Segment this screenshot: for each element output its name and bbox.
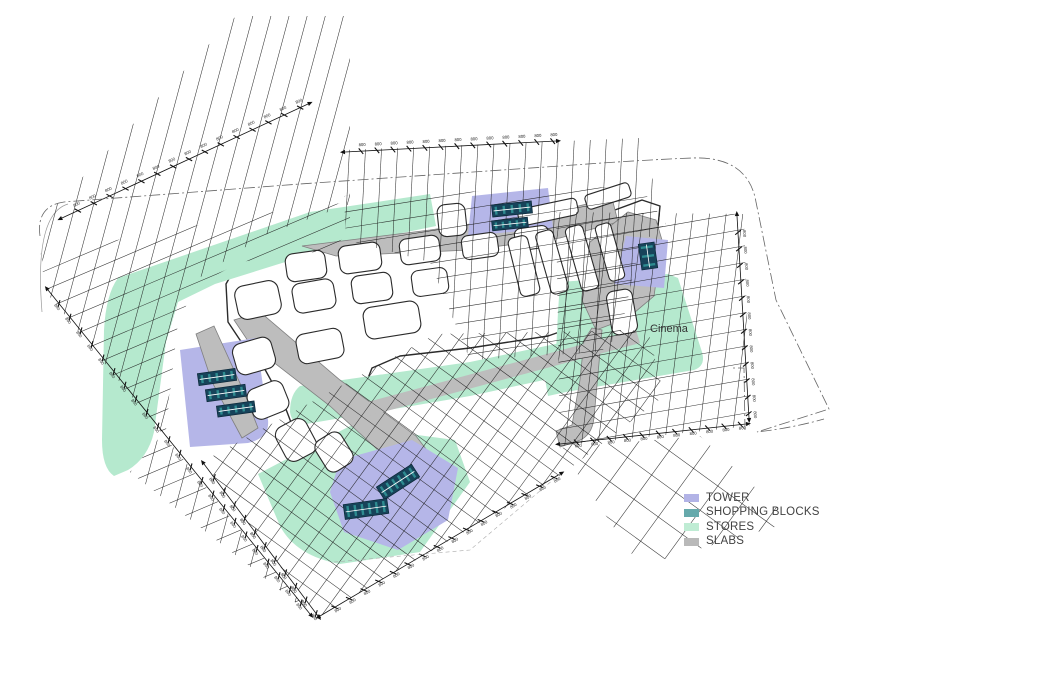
dimension-label: 800 xyxy=(239,517,248,526)
site-plan-canvas: 8008008008008008008008008008008008008008… xyxy=(0,0,1058,699)
courtyard-void xyxy=(410,267,449,298)
legend-label-tower: TOWER xyxy=(706,493,750,505)
dimension-label: 800 xyxy=(436,545,445,553)
dimension-label: 800 xyxy=(390,140,398,145)
dimension-label: 800 xyxy=(747,312,752,320)
dimension-label: 800 xyxy=(753,411,758,419)
dimension-label: 800 xyxy=(624,437,632,443)
dimension-label: 800 xyxy=(722,427,730,433)
dimension-label: 800 xyxy=(509,501,518,509)
dimension-label: 800 xyxy=(263,112,272,120)
dimension-label: 800 xyxy=(359,142,367,147)
dimension-label: 800 xyxy=(53,303,62,312)
dimension-label: 800 xyxy=(607,439,615,445)
dimension-label: 800 xyxy=(575,443,583,449)
courtyard-void xyxy=(350,271,394,304)
dimension-label: 800 xyxy=(470,136,478,141)
dimension-label: 800 xyxy=(450,536,459,544)
dimension-label: 800 xyxy=(752,395,757,403)
legend: TOWER SHOPPING BLOCKS STORES SLABS xyxy=(684,491,820,549)
dimension-label: 800 xyxy=(748,329,753,337)
dimension-label: 800 xyxy=(746,296,751,304)
plan-drawing: 8008008008008008008008008008008008008008… xyxy=(0,0,1058,699)
dimension-label: 800 xyxy=(262,561,271,570)
dimension-label: 800 xyxy=(407,562,416,570)
dimension-label: 800 xyxy=(183,149,192,157)
dimension-label: 800 xyxy=(249,531,258,540)
courtyard-void xyxy=(284,249,328,282)
dimension-label: 800 xyxy=(392,571,401,579)
dimension-label: 800 xyxy=(86,344,95,353)
dimension-label: 800 xyxy=(279,104,288,112)
legend-label-shopping-blocks: SHOPPING BLOCKS xyxy=(706,507,820,519)
dimension-label: 800 xyxy=(374,141,382,146)
dimension-label: 800 xyxy=(486,135,494,140)
dimension-label: 800 xyxy=(480,519,489,527)
dimension-label: 800 xyxy=(706,429,714,435)
cinema-label: Cinema xyxy=(650,323,689,335)
dimension-label: 800 xyxy=(742,230,747,238)
legend-item-stores: STORES xyxy=(684,520,820,535)
dimension-label: 800 xyxy=(273,575,282,584)
dimension-label: 800 xyxy=(218,507,227,516)
site-edge-curve xyxy=(40,204,68,312)
dimension-label: 800 xyxy=(247,119,256,127)
dimension-label: 800 xyxy=(465,527,474,535)
dimension-label: 800 xyxy=(120,178,129,186)
dimension-label: 800 xyxy=(657,434,665,440)
dimension-label: 800 xyxy=(751,378,756,386)
dimension-label: 800 xyxy=(251,548,260,557)
dimension-label: 800 xyxy=(454,137,462,142)
legend-swatch-tower xyxy=(684,494,699,502)
dimension-label: 800 xyxy=(185,466,194,475)
dimension-label: 800 xyxy=(524,493,533,501)
dimension-label: 800 xyxy=(745,279,750,287)
dimension-line: 800800800800800800800800800800800800 xyxy=(735,211,758,423)
dimension-label: 800 xyxy=(591,441,599,447)
dimension-label: 800 xyxy=(743,246,748,254)
courtyard-void xyxy=(398,234,441,265)
dimension-label: 800 xyxy=(438,138,446,143)
legend-item-tower: TOWER xyxy=(684,491,820,506)
dimension-label: 800 xyxy=(553,475,562,483)
dimension-label: 800 xyxy=(104,185,113,193)
dimension-label: 800 xyxy=(207,493,216,502)
dimension-label: 800 xyxy=(518,134,526,139)
legend-label-stores: STORES xyxy=(706,522,754,534)
dimension-label: 800 xyxy=(152,163,161,171)
dimension-label: 800 xyxy=(295,97,304,105)
tower-core xyxy=(638,242,657,270)
dimension-label: 800 xyxy=(363,588,372,596)
dimension-label: 800 xyxy=(215,134,224,142)
legend-swatch-slabs xyxy=(684,538,699,546)
dimension-label: 800 xyxy=(196,480,205,489)
dimension-label: 800 xyxy=(168,156,177,164)
legend-swatch-stores xyxy=(684,523,699,531)
dimension-label: 800 xyxy=(377,579,386,587)
dimension-label: 800 xyxy=(218,490,227,499)
dimension-label: 800 xyxy=(750,362,755,370)
dimension-label: 800 xyxy=(64,316,73,325)
dimension-line: 800800800800800800800800800800800800800 xyxy=(340,132,561,154)
dimension-label: 800 xyxy=(640,436,648,442)
dimension-label: 800 xyxy=(422,139,430,144)
legend-item-slabs: SLABS xyxy=(684,535,820,550)
legend-item-shopping-blocks: SHOPPING BLOCKS xyxy=(684,506,820,521)
dimension-label: 800 xyxy=(689,430,697,436)
dimension-label: 800 xyxy=(749,345,754,353)
dimension-label: 800 xyxy=(744,263,749,271)
dimension-label: 800 xyxy=(229,520,238,529)
dimension-label: 800 xyxy=(136,171,145,179)
legend-label-slabs: SLABS xyxy=(706,536,744,548)
dimension-label: 800 xyxy=(494,510,503,518)
courtyard-void xyxy=(337,241,382,275)
courtyard-void xyxy=(461,232,500,261)
legend-swatch-shopping-blocks xyxy=(684,509,699,517)
dimension-label: 800 xyxy=(163,439,172,448)
dimension-label: 800 xyxy=(348,597,357,605)
dimension-label: 800 xyxy=(534,133,542,138)
dimension-label: 800 xyxy=(406,139,414,144)
dimension-label: 800 xyxy=(240,534,249,543)
dimension-label: 800 xyxy=(550,132,558,137)
dimension-label: 800 xyxy=(739,425,747,431)
dimension-label: 800 xyxy=(502,134,510,139)
dimension-label: 800 xyxy=(229,504,238,513)
dimension-label: 800 xyxy=(673,432,681,438)
dimension-label: 800 xyxy=(231,127,240,135)
dimension-label: 800 xyxy=(421,553,430,561)
